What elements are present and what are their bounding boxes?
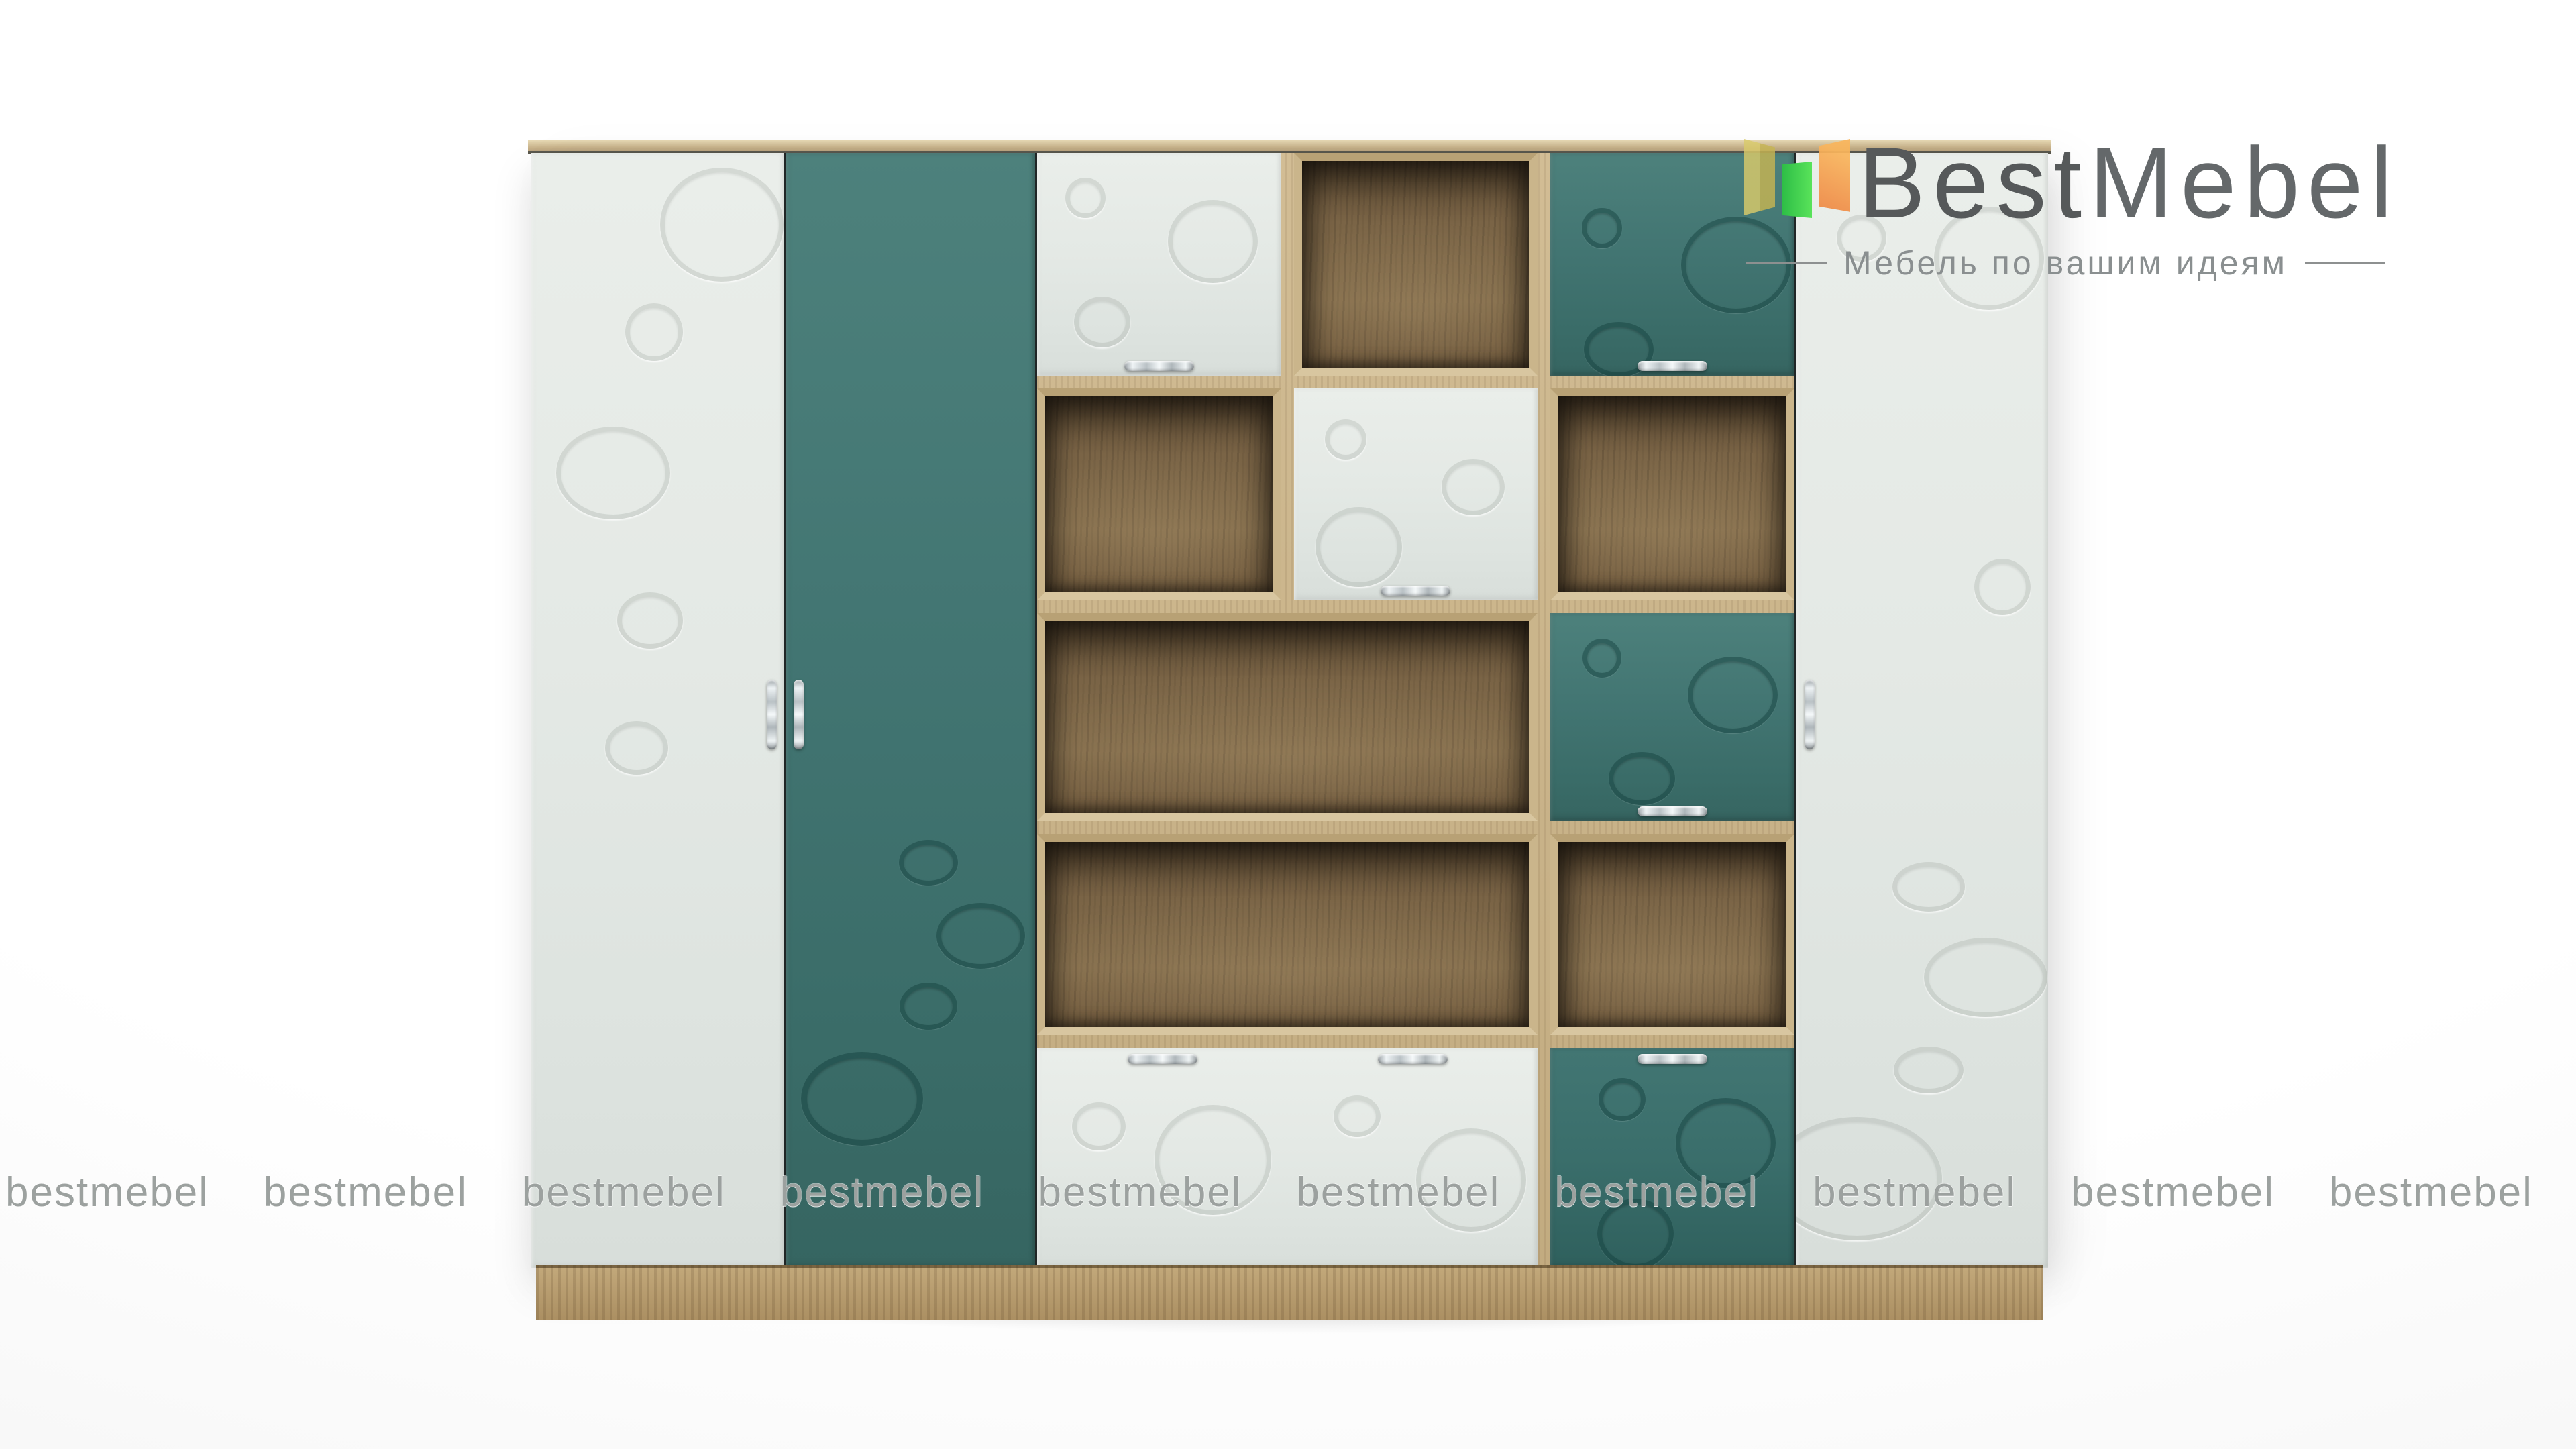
watermark-strip: bestmebel bestmebel bestmebel bestmebel … [5,1169,2533,1216]
open-shelf-cubby [1550,388,1794,600]
ring-ornament [1892,862,1965,912]
door-handle [1124,361,1194,371]
teal-tall-door [786,153,1035,1268]
ring-ornament [1325,419,1366,460]
open-shelf-cubby [1550,834,1794,1035]
door-handle [1805,680,1815,749]
ring-ornament [1334,1095,1381,1137]
watermark-text: bestmebel [1813,1169,2017,1216]
ring-ornament [1582,639,1621,678]
ring-ornament [625,303,683,361]
door-handle [1638,361,1707,371]
left-white-door [531,153,784,1268]
right-white-door [1796,153,2048,1268]
ring-ornament [1168,200,1258,283]
middle-white-cabinet-door [1294,388,1538,600]
door-handle [794,680,804,749]
lower-teal-cabinet-door [1550,613,1794,821]
watermark-text: bestmebel [1296,1169,1500,1216]
logo-orange-bar-icon [1819,139,1850,217]
ring-ornament [1609,752,1675,805]
ring-ornament [899,840,958,885]
ring-ornament [1924,938,2047,1017]
upper-white-cabinet-door [1037,153,1281,376]
ring-ornament [1074,297,1130,347]
ring-ornament [1442,459,1505,515]
watermark-text: bestmebel [2071,1169,2275,1216]
ring-ornament [1974,559,2031,615]
watermark-text: bestmebel [5,1169,209,1216]
ring-ornament [1072,1102,1126,1150]
shelf-grid [1037,153,1794,1268]
ring-ornament [660,168,784,282]
watermark-text: bestmebel [780,1169,984,1216]
ring-ornament [1894,1046,1964,1093]
logo-yellow-bar-icon [1744,139,1775,215]
watermark-text: bestmebel [264,1169,468,1216]
ring-ornament [605,721,668,775]
tagline-left-dash [1746,262,1827,264]
wardrobe-body [531,153,2048,1268]
logo-bars-icon [1743,139,1851,219]
ring-ornament [900,983,957,1030]
wide-open-shelf [1037,613,1538,821]
wide-white-drawer-front [1037,1048,1538,1268]
drawer-handle [1128,1054,1197,1064]
drawer-handle [1638,1054,1707,1064]
ring-ornament [1582,208,1622,248]
logo-word-mebel: Mebel [2089,126,2400,239]
door-handle [767,680,777,749]
wall-unit-wardrobe [531,140,2048,1320]
ring-ornament [1065,178,1106,218]
plinth-base [536,1265,2043,1320]
ring-ornament [1316,507,1402,587]
watermark-text: bestmebel [2329,1169,2533,1216]
ring-ornament [801,1052,923,1146]
logo-tagline-row: Мебель по вашим идеям [1746,244,2423,282]
ring-ornament [556,427,670,519]
wide-open-shelf [1037,834,1538,1035]
open-shelf-cubby [1037,388,1281,600]
watermark-text: bestmebel [1554,1169,1758,1216]
door-handle [1638,806,1707,816]
watermark-text: bestmebel [1038,1169,1242,1216]
door-handle [1381,586,1450,596]
teal-drawer-front [1550,1048,1794,1268]
logo-word-best: Best [1858,126,2089,239]
ring-ornament [1688,657,1778,733]
ring-ornament [936,903,1025,969]
open-shelf-cubby [1294,153,1538,376]
tagline-right-dash [2305,262,2385,264]
logo-green-bar-icon [1782,162,1812,218]
logo-tagline: Мебель по вашим идеям [1843,244,2288,282]
watermark-text: bestmebel [522,1169,726,1216]
ring-ornament [617,592,683,649]
logo-wordmark: BestMebel [1858,132,2400,233]
ring-ornament [1599,1078,1646,1121]
drawer-handle [1378,1054,1448,1064]
